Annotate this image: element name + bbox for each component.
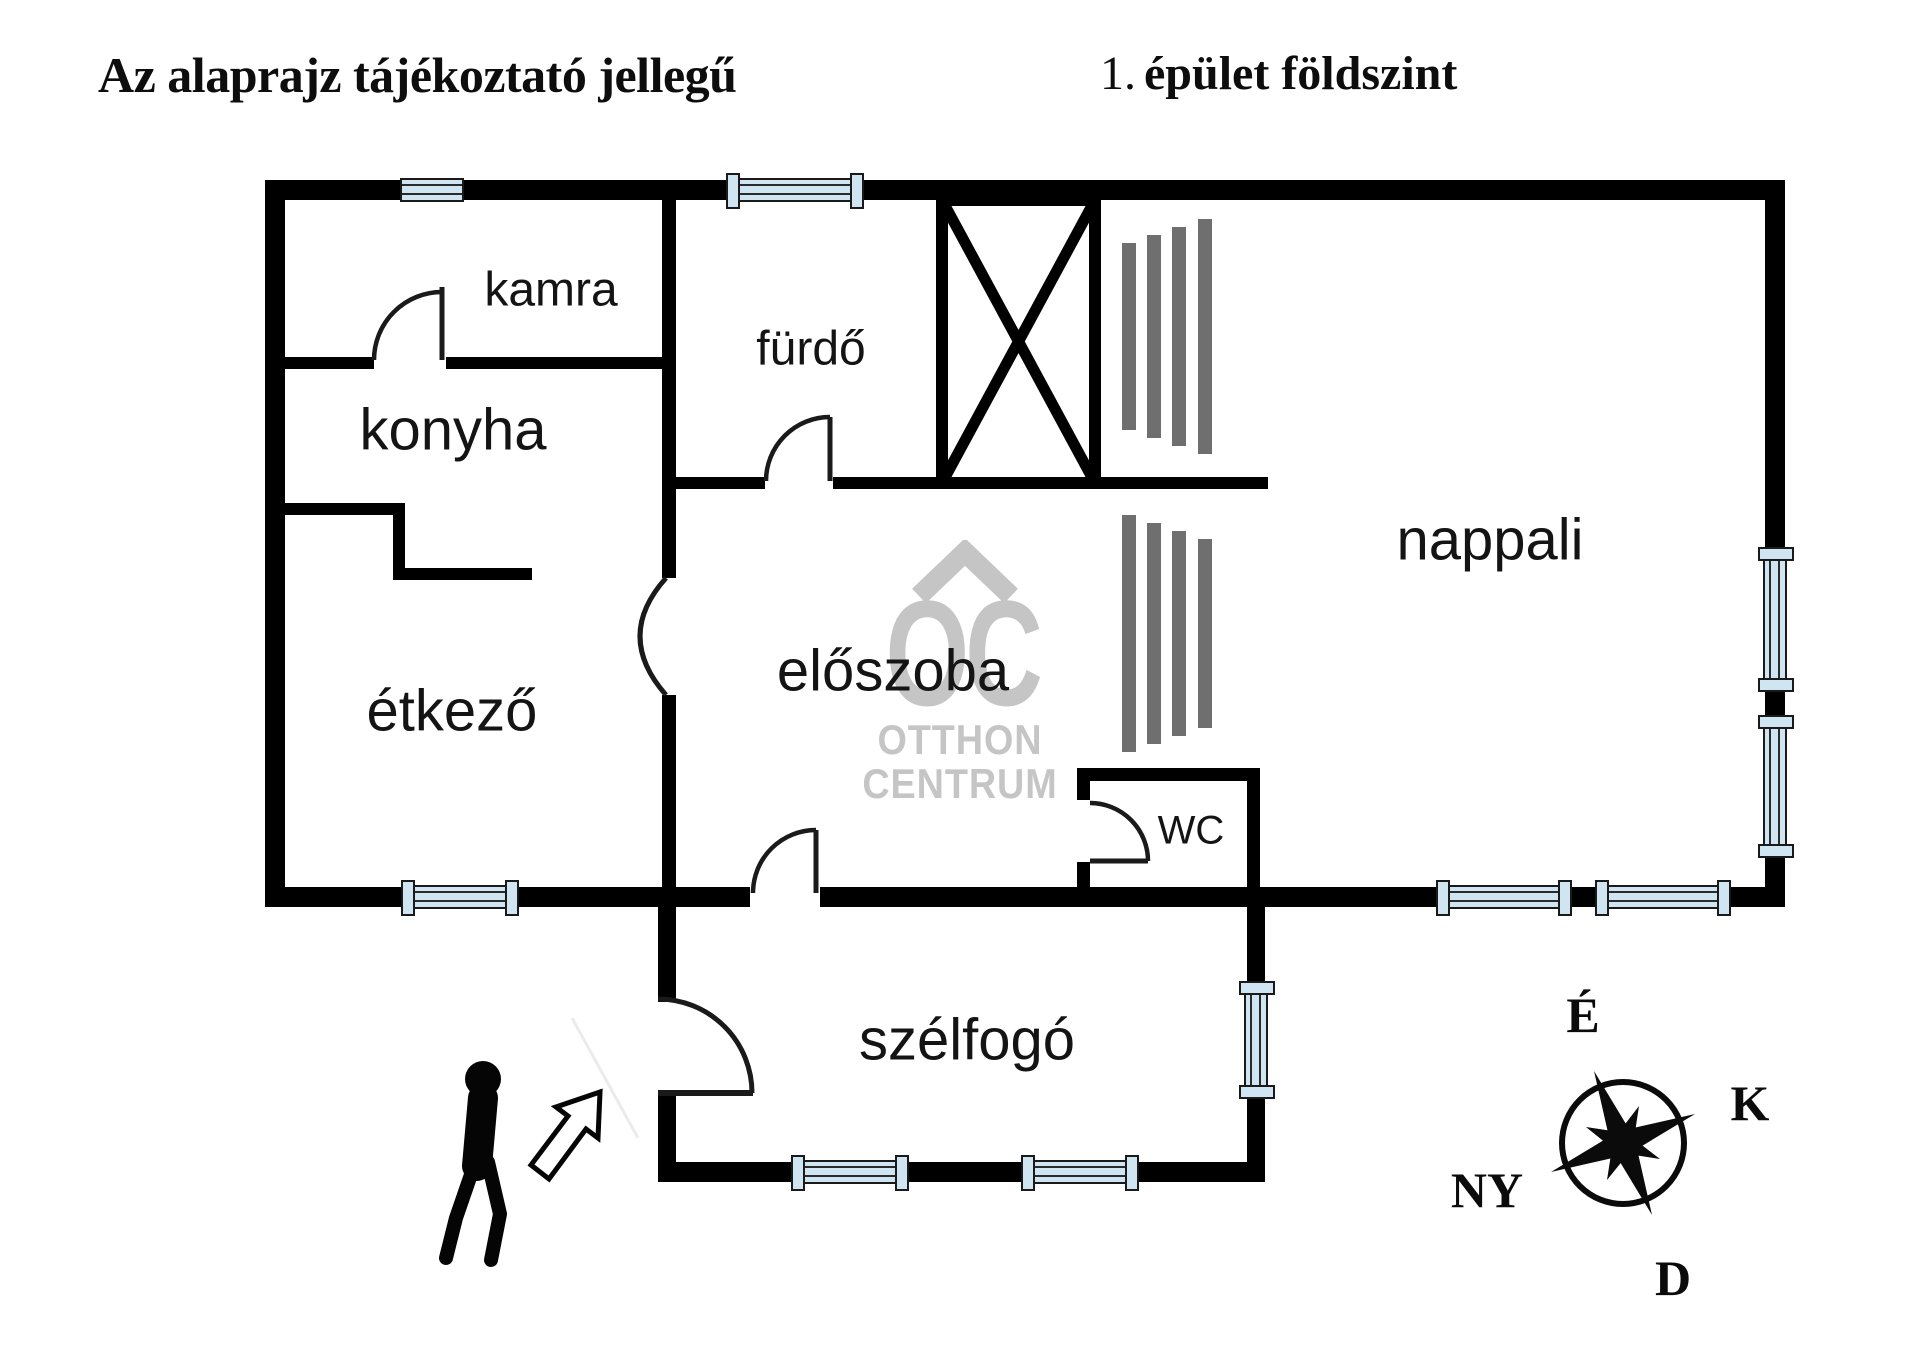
compass-label-west: NY	[1451, 1161, 1523, 1219]
compass-label-east: K	[1731, 1074, 1770, 1132]
entrance-arrow-icon	[520, 1080, 620, 1190]
room-label-konyha: konyha	[359, 397, 546, 464]
compass-label-south: D	[1655, 1249, 1691, 1307]
room-label-szelfogo: szélfogó	[859, 1007, 1075, 1074]
floor-plan-page: Az alaprajz tájékoztató jellegű 1.épület…	[0, 0, 1920, 1357]
room-label-furdo: fürdő	[756, 322, 865, 377]
compass-label-north: É	[1566, 986, 1599, 1044]
room-label-etkezo: étkező	[367, 678, 538, 745]
room-label-eloszoba: előszoba	[777, 638, 1009, 705]
room-label-kamra: kamra	[484, 263, 617, 318]
compass-rose-icon	[1540, 1040, 1720, 1250]
room-label-nappali: nappali	[1396, 507, 1583, 574]
room-label-wc: WC	[1158, 809, 1225, 854]
